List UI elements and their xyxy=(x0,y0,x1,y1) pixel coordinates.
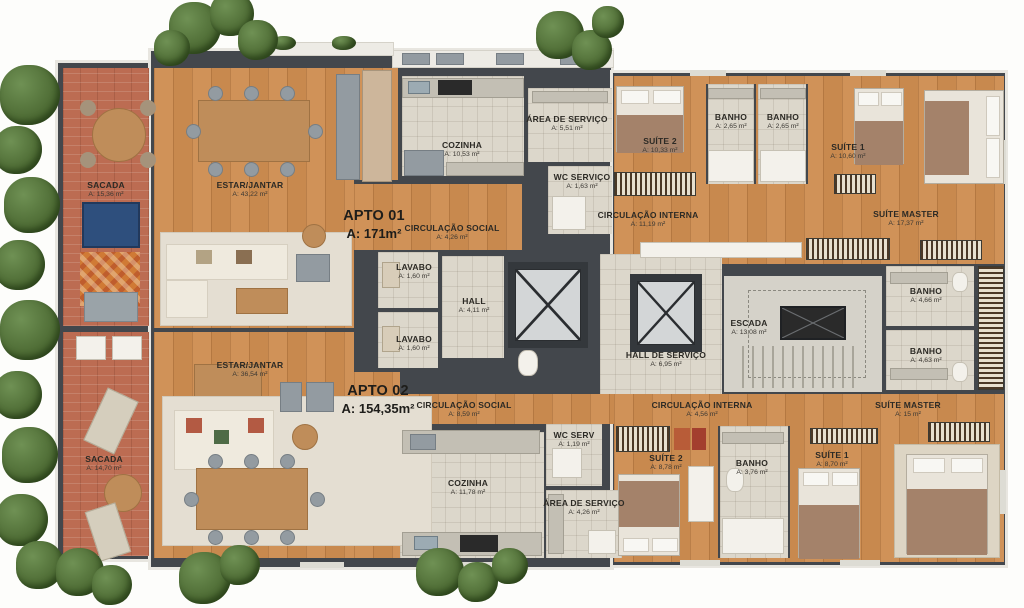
shower xyxy=(708,150,754,182)
chair xyxy=(308,124,323,139)
appliance xyxy=(410,434,436,450)
room-name: BANHO xyxy=(715,112,747,123)
chair xyxy=(208,530,223,545)
storage-box xyxy=(692,428,706,450)
elevator-servico xyxy=(630,274,702,352)
bush xyxy=(492,548,528,584)
room-label: ESCADAA: 13,08 m² xyxy=(730,318,767,338)
room-label: BANHOA: 4,66 m² xyxy=(910,286,942,306)
stair-x-icon xyxy=(782,308,844,338)
coffee-table xyxy=(292,424,318,450)
room-label: WC SERVIÇOA: 1,63 m² xyxy=(554,172,611,192)
ac-unit xyxy=(496,53,524,65)
room-area: A: 11,78 m² xyxy=(448,489,488,498)
bar-counter xyxy=(362,70,392,182)
wardrobe xyxy=(616,426,670,452)
room-name: ESTAR/JANTAR xyxy=(217,360,284,371)
room-label: LAVABOA: 1,60 m² xyxy=(396,334,432,354)
room-name: COZINHA xyxy=(442,140,482,151)
room-label: SUÍTE 1A: 8,70 m² xyxy=(815,450,849,470)
room-label: BANHOA: 4,63 m² xyxy=(910,346,942,366)
room-name: SUÍTE MASTER xyxy=(875,400,941,411)
pillow xyxy=(196,250,212,264)
room-area: A: 4,56 m² xyxy=(652,411,753,420)
washer xyxy=(588,530,616,554)
toilet xyxy=(952,272,968,292)
chair xyxy=(208,454,223,469)
wc-fixture xyxy=(552,448,582,478)
room-name: SUÍTE 1 xyxy=(815,450,849,461)
shaft-closet xyxy=(978,266,1004,390)
side-stool xyxy=(302,224,326,248)
chair xyxy=(280,454,295,469)
room-name: SUÍTE 2 xyxy=(649,453,683,464)
window xyxy=(850,70,886,76)
room-area: A: 1,60 m² xyxy=(396,273,432,282)
room-area: A: 4,66 m² xyxy=(910,297,942,306)
chair xyxy=(80,100,96,116)
chair xyxy=(280,86,295,101)
room-area: A: 8,78 m² xyxy=(649,464,683,473)
chair xyxy=(244,530,259,545)
window xyxy=(300,562,344,568)
room-name: BANHO xyxy=(910,286,942,297)
chair xyxy=(280,162,295,177)
room-label: HALLA: 4,11 m² xyxy=(459,296,490,316)
room-label: CIRCULAÇÃO INTERNAA: 4,56 m² xyxy=(652,400,753,420)
room-area: A: 1,63 m² xyxy=(554,183,611,192)
vanity xyxy=(890,368,948,380)
outdoor-sofa xyxy=(84,292,138,322)
room-area: A: 14,70 m² xyxy=(85,465,123,474)
room-area: A: 6,95 m² xyxy=(626,361,706,370)
room-label: ÁREA DE SERVIÇOA: 4,26 m² xyxy=(543,498,624,518)
room-area: A: 2,65 m² xyxy=(767,123,799,132)
room-name: ÁREA DE SERVIÇO xyxy=(526,114,607,125)
room-label: SUÍTE MASTERA: 15 m² xyxy=(875,400,941,420)
room-area: A: 13,08 m² xyxy=(730,329,767,338)
chair xyxy=(280,530,295,545)
room-name: CIRCULAÇÃO INTERNA xyxy=(598,210,699,221)
closet xyxy=(928,422,990,442)
dining-table xyxy=(198,100,310,162)
apartment-label: APTO 02A: 154,35m² xyxy=(342,382,415,418)
bush xyxy=(0,300,60,360)
bush xyxy=(0,371,42,419)
chair xyxy=(80,152,96,168)
sofa xyxy=(166,244,288,280)
bush xyxy=(0,65,60,125)
pillow xyxy=(214,430,229,444)
room-area: A: 4,26 m² xyxy=(404,234,499,243)
room-name: COZINHA xyxy=(448,478,488,489)
sink xyxy=(408,81,430,94)
stair-core xyxy=(780,306,846,340)
bush xyxy=(0,494,48,546)
toilet xyxy=(518,350,538,376)
bed xyxy=(798,468,860,558)
room-name: BANHO xyxy=(736,458,768,469)
room-area: A: 36,54 m² xyxy=(217,371,284,380)
chair xyxy=(140,100,156,116)
room-label: BANHOA: 2,65 m² xyxy=(715,112,747,132)
apartment-name: APTO 01 xyxy=(343,207,405,226)
room-area: A: 10,33 m² xyxy=(642,147,677,156)
room-label: BANHOA: 3,76 m² xyxy=(736,458,768,478)
outdoor-chair xyxy=(112,336,142,360)
chair xyxy=(140,152,156,168)
room-name: ÁREA DE SERVIÇO xyxy=(543,498,624,509)
room-label: SUÍTE 2A: 10,33 m² xyxy=(642,136,677,156)
bed xyxy=(618,474,680,556)
bush xyxy=(2,427,58,483)
kitchen-island xyxy=(404,150,444,176)
chair xyxy=(244,86,259,101)
room-area: A: 4,63 m² xyxy=(910,357,942,366)
cooktop xyxy=(460,535,498,552)
buffet-cabinet xyxy=(336,74,360,180)
chair xyxy=(186,124,201,139)
window xyxy=(690,70,726,76)
closet xyxy=(806,238,890,260)
room-area: A: 2,65 m² xyxy=(715,123,747,132)
pillow xyxy=(186,418,202,433)
bush xyxy=(92,565,132,605)
room-name: HALL DE SERVIÇO xyxy=(626,350,706,361)
pillow xyxy=(248,418,264,433)
bush xyxy=(4,177,60,233)
coffee-table xyxy=(236,288,288,314)
vanity xyxy=(708,88,754,99)
apartment-label: APTO 01A: 171m² xyxy=(343,207,405,243)
vanity xyxy=(890,272,948,284)
room-label: SUÍTE 2A: 8,78 m² xyxy=(649,453,683,473)
room-label: CIRCULAÇÃO INTERNAA: 11,19 m² xyxy=(598,210,699,230)
elevator-x-icon xyxy=(515,269,581,341)
room-label: SUÍTE MASTERA: 17,37 m² xyxy=(873,209,939,229)
room-name: LAVABO xyxy=(396,262,432,273)
pillow xyxy=(236,250,252,264)
kitchen-counter xyxy=(446,162,524,176)
room-area: A: 15,36 m² xyxy=(87,191,125,200)
armchair xyxy=(280,382,302,412)
room-name: SUÍTE 2 xyxy=(642,136,677,147)
room-label: SACADAA: 15,36 m² xyxy=(87,180,125,200)
window xyxy=(840,560,880,566)
room-name: WC SERV xyxy=(551,430,597,441)
ac-unit xyxy=(402,53,430,65)
dining-table xyxy=(196,468,308,530)
room-label: HALL DE SERVIÇOA: 6,95 m² xyxy=(626,350,706,370)
armchair xyxy=(296,254,330,282)
room-label: ESTAR/JANTARA: 43,22 m² xyxy=(217,180,284,200)
shower xyxy=(760,150,806,182)
room-label: COZINHAA: 10,53 m² xyxy=(442,140,482,160)
room-label: LAVABOA: 1,60 m² xyxy=(396,262,432,282)
room-label: BANHOA: 2,65 m² xyxy=(767,112,799,132)
room-label: WC SERVA: 1,19 m² xyxy=(551,430,597,450)
laundry-counter xyxy=(532,91,608,103)
room-area: A: 10,60 m² xyxy=(830,153,865,162)
maid-bed xyxy=(552,196,586,230)
window xyxy=(680,560,720,566)
apartment-area: A: 154,35m² xyxy=(342,401,415,418)
shower xyxy=(722,518,784,554)
elevator-social xyxy=(508,262,588,348)
storage-box xyxy=(674,428,690,450)
chair xyxy=(208,86,223,101)
round-table xyxy=(92,108,146,162)
room-label: SUÍTE 1A: 10,60 m² xyxy=(830,142,865,162)
apartment-area: A: 171m² xyxy=(343,226,405,243)
room-area: A: 43,22 m² xyxy=(217,191,284,200)
room-name: ESCADA xyxy=(730,318,767,329)
chair xyxy=(244,454,259,469)
bush xyxy=(592,6,624,38)
sofa-chaise xyxy=(166,280,208,318)
room-label: COZINHAA: 11,78 m² xyxy=(448,478,488,498)
room-name: WC SERVIÇO xyxy=(554,172,611,183)
chair xyxy=(208,162,223,177)
room-area: A: 11,19 m² xyxy=(598,221,699,230)
bush xyxy=(416,548,464,596)
wardrobe xyxy=(810,428,878,444)
wardrobe xyxy=(614,172,696,196)
chair xyxy=(244,162,259,177)
wardrobe xyxy=(834,174,876,194)
room-area: A: 5,51 m² xyxy=(526,125,607,134)
room-area: A: 4,11 m² xyxy=(459,307,490,316)
daybed xyxy=(82,202,140,248)
vanity xyxy=(722,432,784,444)
bed xyxy=(924,90,1004,184)
room-area: A: 4,26 m² xyxy=(543,509,624,518)
room-name: HALL xyxy=(459,296,490,307)
cooktop xyxy=(438,80,472,95)
room-area: A: 1,60 m² xyxy=(396,345,432,354)
bush xyxy=(0,240,45,290)
room-area: A: 17,37 m² xyxy=(873,220,939,229)
bed xyxy=(906,454,988,554)
room-name: BANHO xyxy=(767,112,799,123)
room-area: A: 8,59 m² xyxy=(416,411,511,420)
sideboard xyxy=(640,242,802,258)
chair xyxy=(184,492,199,507)
room-label: ÁREA DE SERVIÇOA: 5,51 m² xyxy=(526,114,607,134)
room-name: ESTAR/JANTAR xyxy=(217,180,284,191)
room-label: CIRCULAÇÃO SOCIALA: 4,26 m² xyxy=(404,223,499,243)
stair-treads xyxy=(742,346,854,388)
outdoor-chair xyxy=(76,336,106,360)
room-label: CIRCULAÇÃO SOCIALA: 8,59 m² xyxy=(416,400,511,420)
room-name: SACADA xyxy=(85,454,123,465)
bush xyxy=(220,545,260,585)
ac-unit xyxy=(436,53,464,65)
chair xyxy=(310,492,325,507)
room-area: A: 3,76 m² xyxy=(736,469,768,478)
room-name: SUÍTE 1 xyxy=(830,142,865,153)
room-name: CIRCULAÇÃO SOCIAL xyxy=(416,400,511,411)
armchair xyxy=(306,382,334,412)
room-label: ESTAR/JANTARA: 36,54 m² xyxy=(217,360,284,380)
window xyxy=(1000,470,1006,514)
room-name: BANHO xyxy=(910,346,942,357)
room-name: CIRCULAÇÃO SOCIAL xyxy=(404,223,499,234)
room-area: A: 1,19 m² xyxy=(551,441,597,450)
apartment-name: APTO 02 xyxy=(342,382,415,401)
room-area: A: 10,53 m² xyxy=(442,151,482,160)
room-area: A: 8,70 m² xyxy=(815,461,849,470)
room-name: LAVABO xyxy=(396,334,432,345)
desk xyxy=(688,466,714,522)
elevator-x-icon xyxy=(637,281,695,345)
room-name: CIRCULAÇÃO INTERNA xyxy=(652,400,753,411)
floor-plan: SACADAA: 15,36 m² ESTAR/JANTARA: 43,22 m… xyxy=(0,0,1024,608)
bush xyxy=(0,126,42,174)
vanity xyxy=(760,88,806,99)
room-name: SUÍTE MASTER xyxy=(873,209,939,220)
room-name: SACADA xyxy=(87,180,125,191)
room-label: SACADAA: 14,70 m² xyxy=(85,454,123,474)
closet xyxy=(920,240,982,260)
toilet xyxy=(952,362,968,382)
room-area: A: 15 m² xyxy=(875,411,941,420)
